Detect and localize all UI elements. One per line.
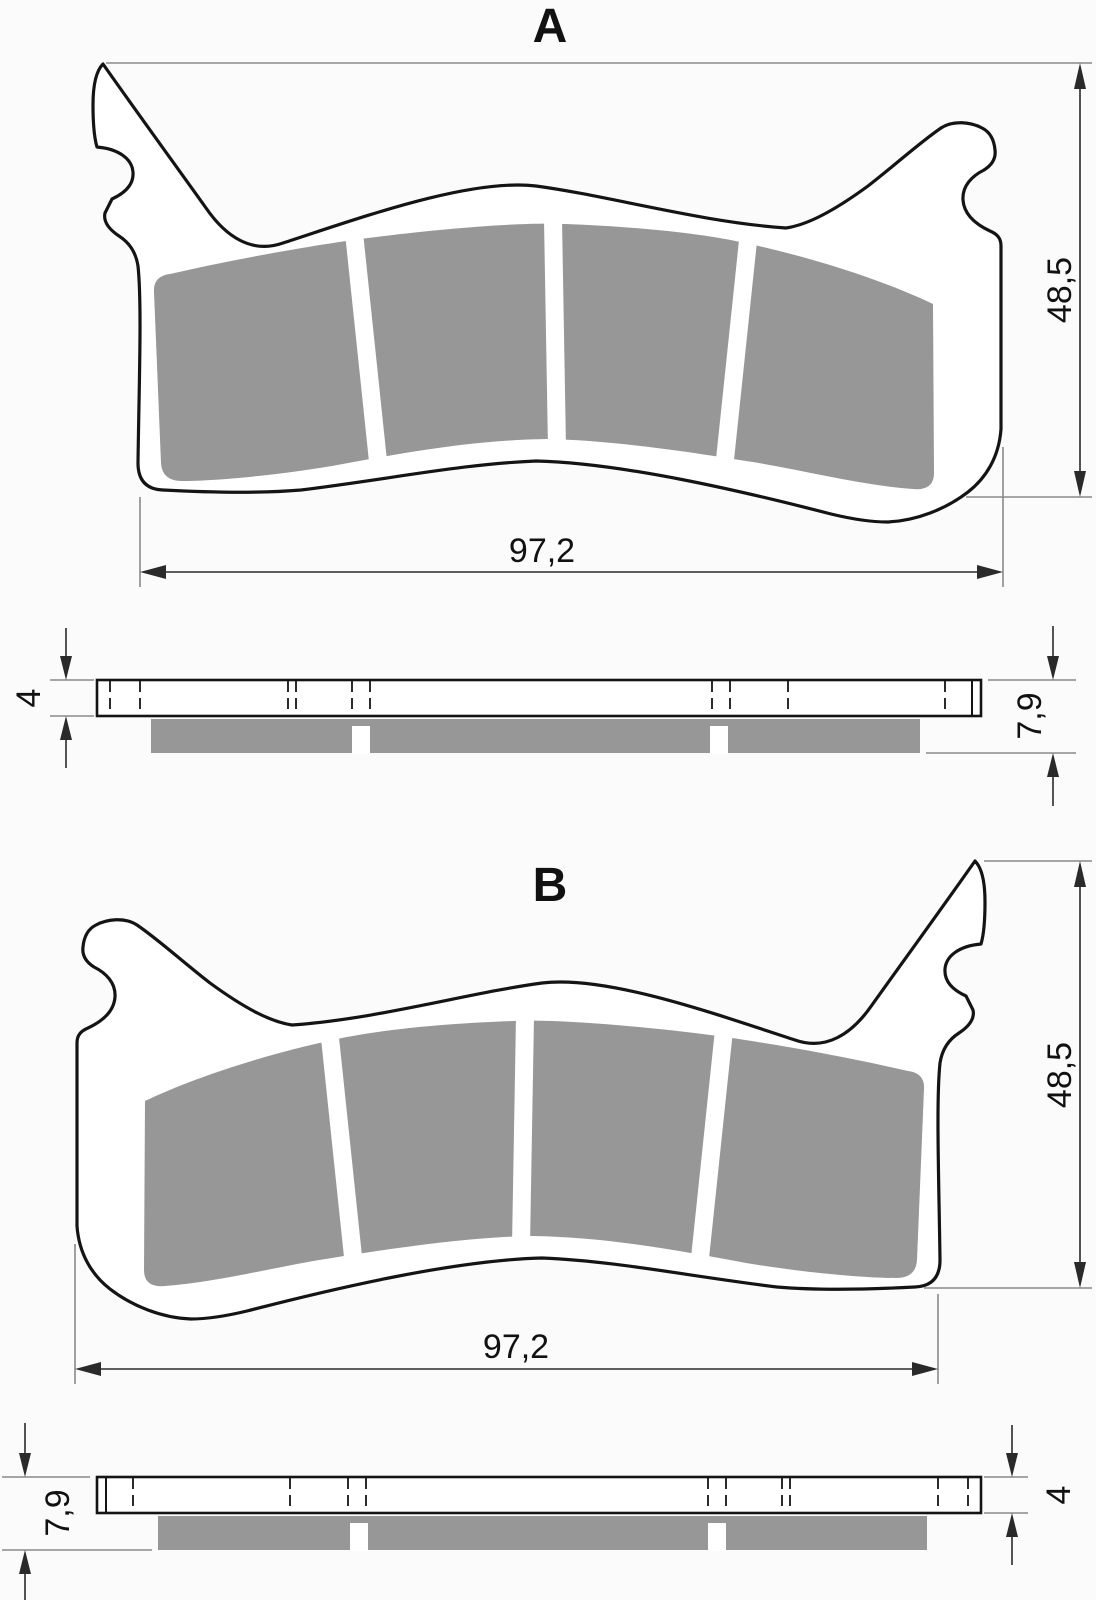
cross-section-b (2, 1423, 1028, 1600)
dim-height-a: 48,5 (1041, 257, 1079, 323)
dim-plate-thickness-a: 4 (10, 689, 48, 708)
dim-height-b: 48,5 (1041, 1042, 1079, 1108)
view-a-label: A (533, 0, 568, 53)
pad-a-top-view (93, 64, 1001, 522)
dim-total-thickness-b: 7,9 (39, 1489, 77, 1536)
cross-section-a (50, 626, 1076, 806)
dim-width-a: 97,2 (509, 532, 575, 570)
dim-total-thickness-a: 7,9 (1011, 692, 1049, 739)
dim-plate-thickness-b: 4 (1040, 1486, 1078, 1505)
brake-pad-technical-drawing: A B 97,2 97,2 48,5 48,5 4 7,9 7,9 4 (0, 0, 1096, 1600)
pad-b-top-view (77, 861, 985, 1319)
view-b-label: B (533, 859, 568, 912)
dim-width-b: 97,2 (483, 1328, 549, 1366)
